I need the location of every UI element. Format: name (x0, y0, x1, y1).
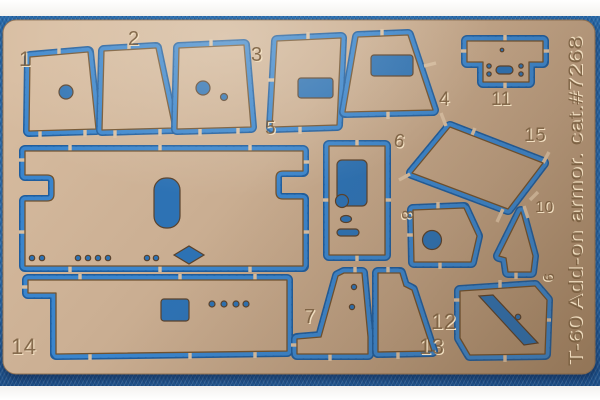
lighting-shade (3, 20, 595, 374)
part-number-text: 14 (11, 334, 36, 359)
part-number-2: 22 (128, 28, 141, 51)
part-number-9: 99 (539, 273, 557, 283)
part-number-text: 3 (251, 44, 263, 66)
photoetch-fret-photo: 1122334455667788991010111112121313141415… (0, 0, 600, 400)
part-number-4: 44 (439, 89, 451, 111)
part-number-13: 1313 (419, 334, 446, 360)
part-number-text: 2 (128, 28, 140, 50)
part-number-text: 15 (524, 125, 546, 146)
part-number-10: 1010 (535, 199, 555, 217)
part-number-12: 1212 (431, 309, 458, 335)
part-number-text: 7 (304, 306, 316, 328)
part-number-15: 1515 (524, 125, 547, 147)
part-number-14: 1414 (11, 334, 38, 360)
part-number-text: 13 (419, 334, 444, 359)
part-number-text: 4 (439, 89, 450, 110)
part-number-text: 8 (398, 210, 417, 220)
part-number-text: 1 (19, 48, 31, 71)
part-number-5: 55 (265, 118, 277, 140)
part-number-text: 9 (540, 273, 557, 282)
part-number-1: 11 (19, 48, 32, 72)
part-number-text: 5 (265, 118, 276, 139)
side-text: T-60 Add-on armor. cat.#7268 (566, 36, 587, 366)
part-number-7: 77 (304, 306, 317, 329)
part-number-text: 11 (491, 89, 512, 110)
part-number-3: 33 (251, 44, 264, 67)
part-number-8: 88 (397, 210, 417, 221)
part-number-text: 10 (535, 199, 554, 216)
side-etched-text: T-60 Add-on armor. cat.#7268 T-60 Add-on… (566, 35, 588, 366)
part-number-text: 12 (431, 309, 456, 334)
part-number-11: 1111 (491, 89, 513, 111)
fret-drawing: 1122334455667788991010111112121313141415… (0, 0, 600, 400)
